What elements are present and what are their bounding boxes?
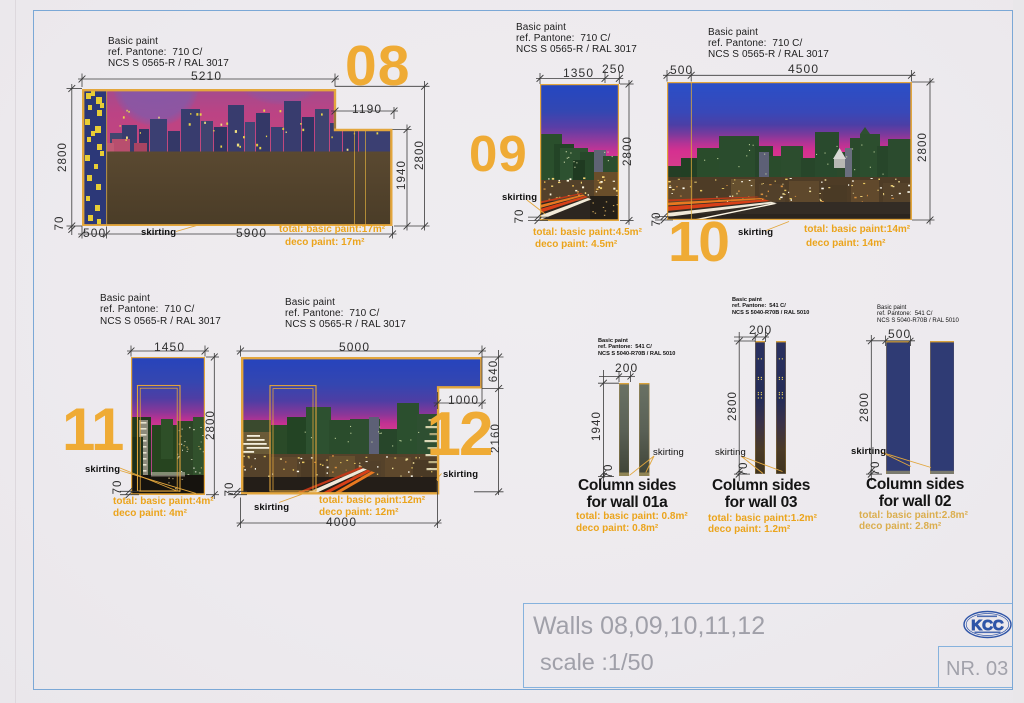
svg-text:KCC: KCC bbox=[971, 617, 1004, 634]
